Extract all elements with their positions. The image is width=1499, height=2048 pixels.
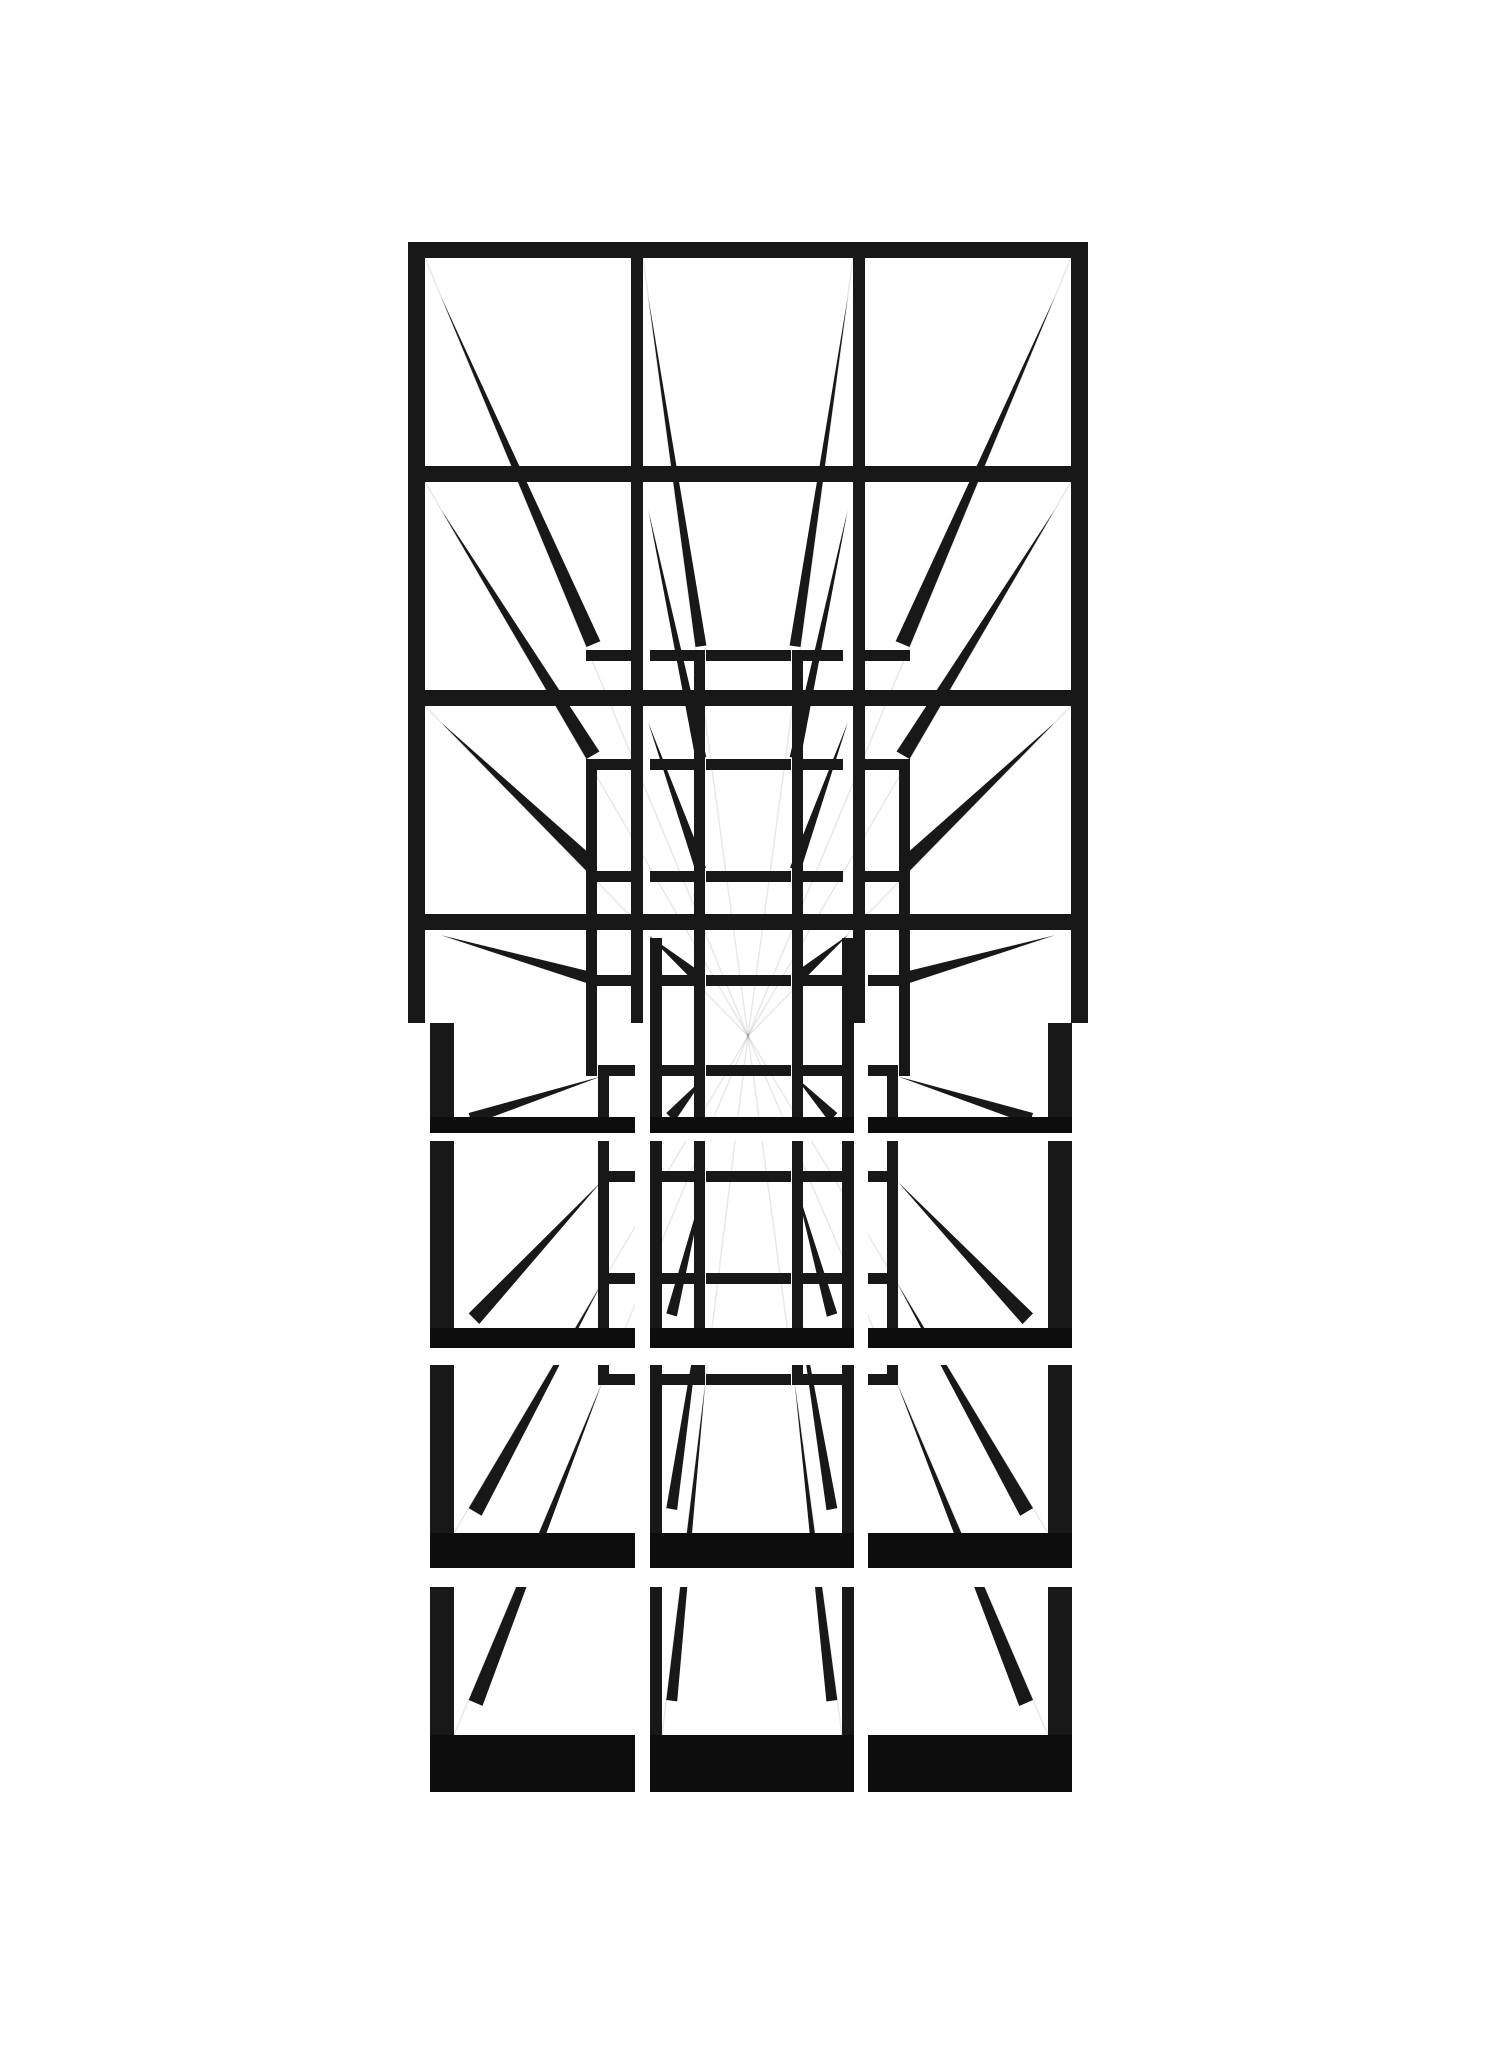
artwork-page	[0, 0, 1499, 2048]
perspective-drawing-canvas	[0, 0, 1499, 2048]
